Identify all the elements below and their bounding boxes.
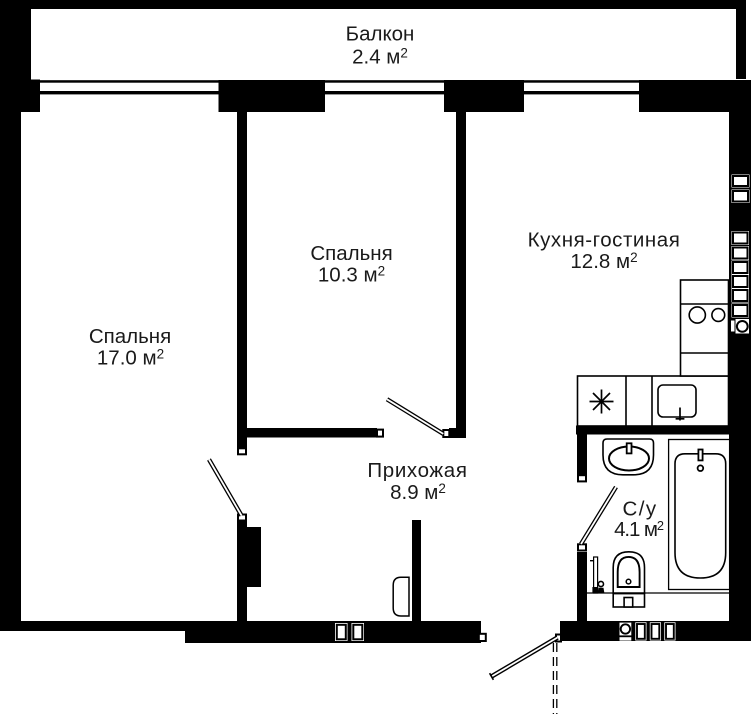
svg-text:Спальня: Спальня — [89, 325, 171, 348]
svg-text:8.9 м2: 8.9 м2 — [390, 481, 446, 504]
svg-text:Прихожая: Прихожая — [367, 459, 467, 482]
svg-text:Кухня-гостиная: Кухня-гостиная — [528, 229, 681, 252]
svg-text:4.1 м2: 4.1 м2 — [614, 518, 664, 541]
svg-text:Балкон: Балкон — [346, 23, 415, 46]
svg-text:2.4 м2: 2.4 м2 — [352, 46, 408, 69]
svg-text:12.8 м2: 12.8 м2 — [570, 250, 637, 273]
svg-text:10.3 м2: 10.3 м2 — [318, 264, 385, 287]
svg-text:17.0 м2: 17.0 м2 — [97, 347, 164, 370]
svg-text:Спальня: Спальня — [310, 242, 392, 265]
